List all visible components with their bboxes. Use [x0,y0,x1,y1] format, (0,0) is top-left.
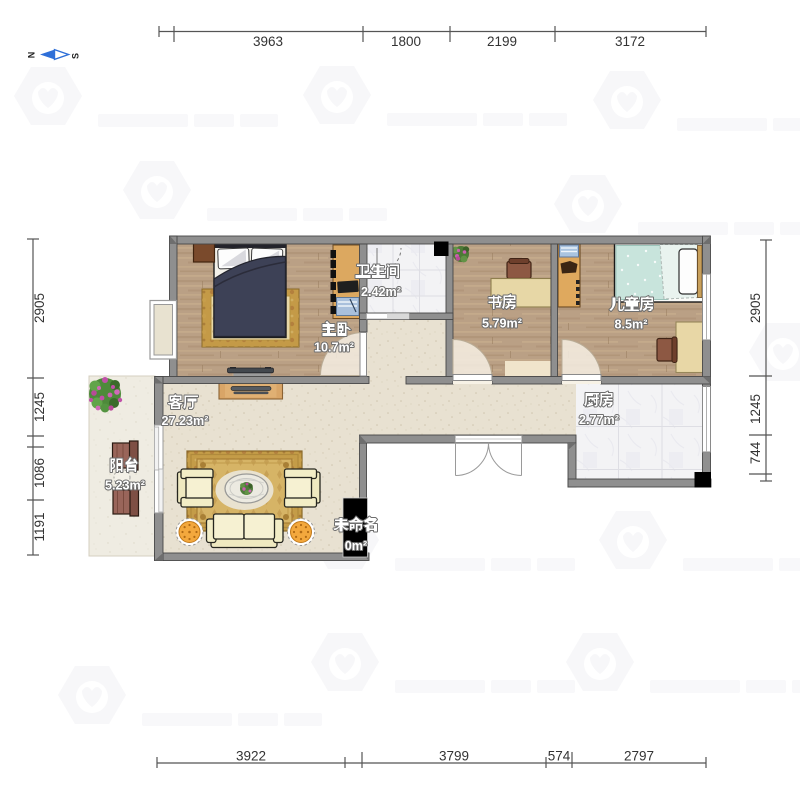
svg-text:744: 744 [748,441,763,464]
svg-text:10.7m²: 10.7m² [314,341,354,355]
svg-text:574: 574 [548,749,571,764]
svg-text:3963: 3963 [253,34,283,49]
svg-text:5.23m²: 5.23m² [105,479,145,493]
svg-text:1245: 1245 [748,394,763,424]
svg-text:2.77m²: 2.77m² [579,413,619,427]
svg-text:27.23m²: 27.23m² [162,414,209,428]
svg-text:2.42m²: 2.42m² [361,285,401,299]
svg-text:2797: 2797 [624,749,654,764]
svg-text:1191: 1191 [32,512,47,541]
svg-text:1086: 1086 [32,458,47,488]
svg-text:N: N [26,52,36,59]
svg-text:1800: 1800 [391,34,421,49]
svg-text:2905: 2905 [32,293,47,323]
svg-text:0m²: 0m² [345,539,367,553]
svg-text:8.5m²: 8.5m² [615,318,648,332]
svg-text:3799: 3799 [439,749,469,764]
svg-text:2199: 2199 [487,34,517,49]
svg-text:1245: 1245 [32,392,47,422]
svg-text:3172: 3172 [615,34,645,49]
svg-text:2905: 2905 [748,293,763,323]
svg-text:5.79m²: 5.79m² [482,317,522,331]
svg-text:S: S [70,53,80,59]
svg-text:3922: 3922 [236,749,266,764]
